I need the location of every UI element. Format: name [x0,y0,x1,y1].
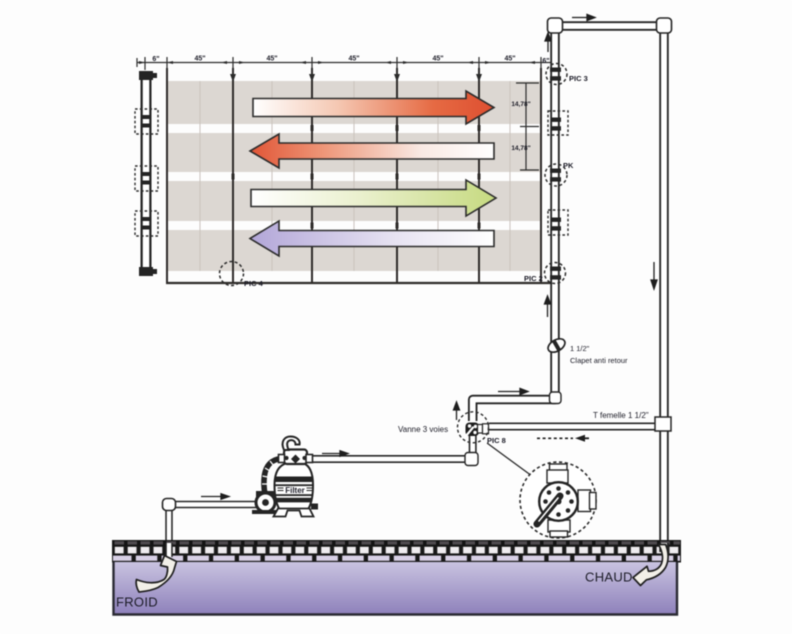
svg-text:T femelle 1 1/2": T femelle 1 1/2" [593,411,649,420]
svg-text:6": 6" [542,58,549,65]
svg-text:45": 45" [194,56,205,63]
svg-text:6": 6" [152,56,159,63]
svg-text:Vanne 3 voies: Vanne 3 voies [398,425,448,434]
svg-text:PIC 8: PIC 8 [487,436,506,445]
svg-text:FROID: FROID [116,595,158,610]
svg-text:Clapet anti retour: Clapet anti retour [570,356,628,365]
svg-text:PIC 3: PIC 3 [569,74,588,83]
svg-text:PK: PK [563,161,574,170]
svg-text:45": 45" [432,56,443,63]
svg-text:45": 45" [348,56,359,63]
svg-text:PIC 2: PIC 2 [524,274,543,283]
svg-text:Filter: Filter [285,486,305,495]
svg-text:45": 45" [504,56,515,63]
svg-text:CHAUD: CHAUD [585,570,633,585]
svg-text:14,78": 14,78" [511,101,530,108]
svg-text:PIC 4: PIC 4 [244,279,264,288]
svg-text:1 1/2": 1 1/2" [570,344,590,353]
svg-text:45": 45" [266,56,277,63]
svg-text:14,78": 14,78" [511,145,530,152]
